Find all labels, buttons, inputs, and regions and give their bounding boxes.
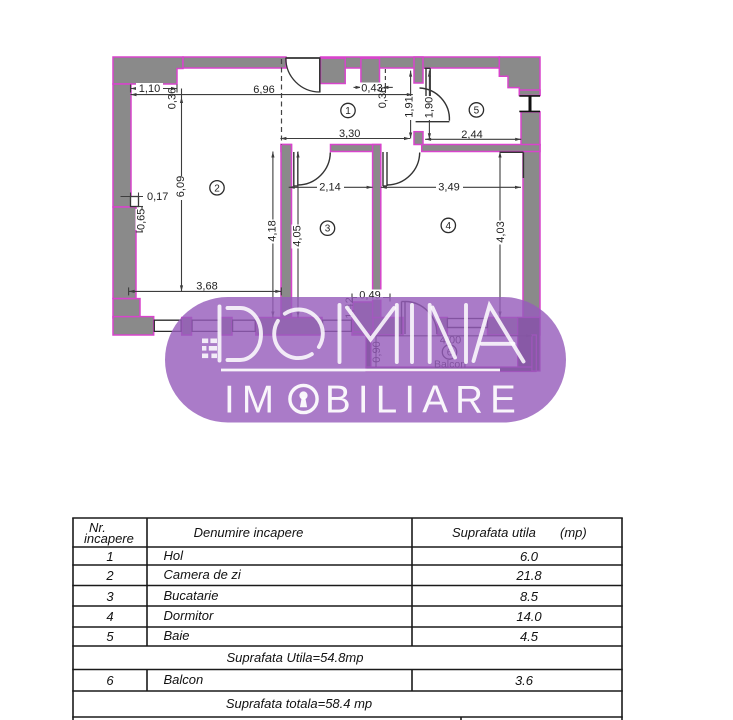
svg-text:8.5: 8.5 xyxy=(520,589,539,604)
svg-text:1: 1 xyxy=(345,106,351,117)
svg-text:3.6: 3.6 xyxy=(515,673,534,688)
svg-text:5: 5 xyxy=(106,629,114,644)
svg-text:6,96: 6,96 xyxy=(253,84,274,96)
svg-text:0,65: 0,65 xyxy=(136,209,148,230)
svg-text:6,09: 6,09 xyxy=(175,176,187,197)
svg-text:3,68: 3,68 xyxy=(196,281,217,293)
svg-text:Dormitor: Dormitor xyxy=(164,608,215,623)
svg-text:3: 3 xyxy=(325,224,331,235)
svg-text:BILIARE: BILIARE xyxy=(325,379,523,422)
svg-text:3: 3 xyxy=(106,589,114,604)
svg-text:4,18: 4,18 xyxy=(267,220,279,241)
svg-text:3,49: 3,49 xyxy=(438,182,459,194)
svg-text:Suprafata utila: Suprafata utila xyxy=(452,525,536,540)
svg-text:14.0: 14.0 xyxy=(516,609,542,624)
svg-text:1,91: 1,91 xyxy=(404,96,416,117)
svg-text:2: 2 xyxy=(214,183,220,194)
svg-text:Denumire incapere: Denumire incapere xyxy=(194,525,304,540)
svg-text:IM: IM xyxy=(224,379,281,422)
svg-text:1,10: 1,10 xyxy=(139,83,160,95)
svg-text:Bucatarie: Bucatarie xyxy=(164,588,219,603)
svg-text:4: 4 xyxy=(106,609,113,624)
svg-text:Balcon: Balcon xyxy=(164,672,204,687)
svg-text:4: 4 xyxy=(446,221,452,232)
svg-text:21.8: 21.8 xyxy=(515,568,542,583)
svg-text:2,14: 2,14 xyxy=(319,182,340,194)
svg-text:6.0: 6.0 xyxy=(520,549,539,564)
svg-text:incapere: incapere xyxy=(84,531,134,546)
svg-text:1,90: 1,90 xyxy=(424,97,436,118)
svg-text:1: 1 xyxy=(106,549,113,564)
svg-text:Suprafata Utila=54.8mp: Suprafata Utila=54.8mp xyxy=(227,650,364,665)
svg-text:0,36: 0,36 xyxy=(377,87,389,108)
svg-text:2: 2 xyxy=(105,568,114,583)
svg-text:Hol: Hol xyxy=(164,548,185,563)
svg-text:0,36: 0,36 xyxy=(167,88,179,109)
svg-text:Baie: Baie xyxy=(164,628,190,643)
svg-text:4,05: 4,05 xyxy=(292,225,304,246)
svg-text:4.5: 4.5 xyxy=(520,629,539,644)
svg-text:Suprafata totala=58.4 mp: Suprafata totala=58.4 mp xyxy=(226,696,372,711)
svg-text:6: 6 xyxy=(106,673,114,688)
svg-text:3,30: 3,30 xyxy=(339,128,360,140)
svg-text:Camera de zi: Camera de zi xyxy=(164,567,242,582)
svg-text:(mp): (mp) xyxy=(560,525,587,540)
svg-text:0,17: 0,17 xyxy=(147,191,168,203)
svg-text:4,03: 4,03 xyxy=(495,221,507,242)
svg-text:5: 5 xyxy=(474,105,480,116)
svg-text:2,44: 2,44 xyxy=(461,129,482,141)
